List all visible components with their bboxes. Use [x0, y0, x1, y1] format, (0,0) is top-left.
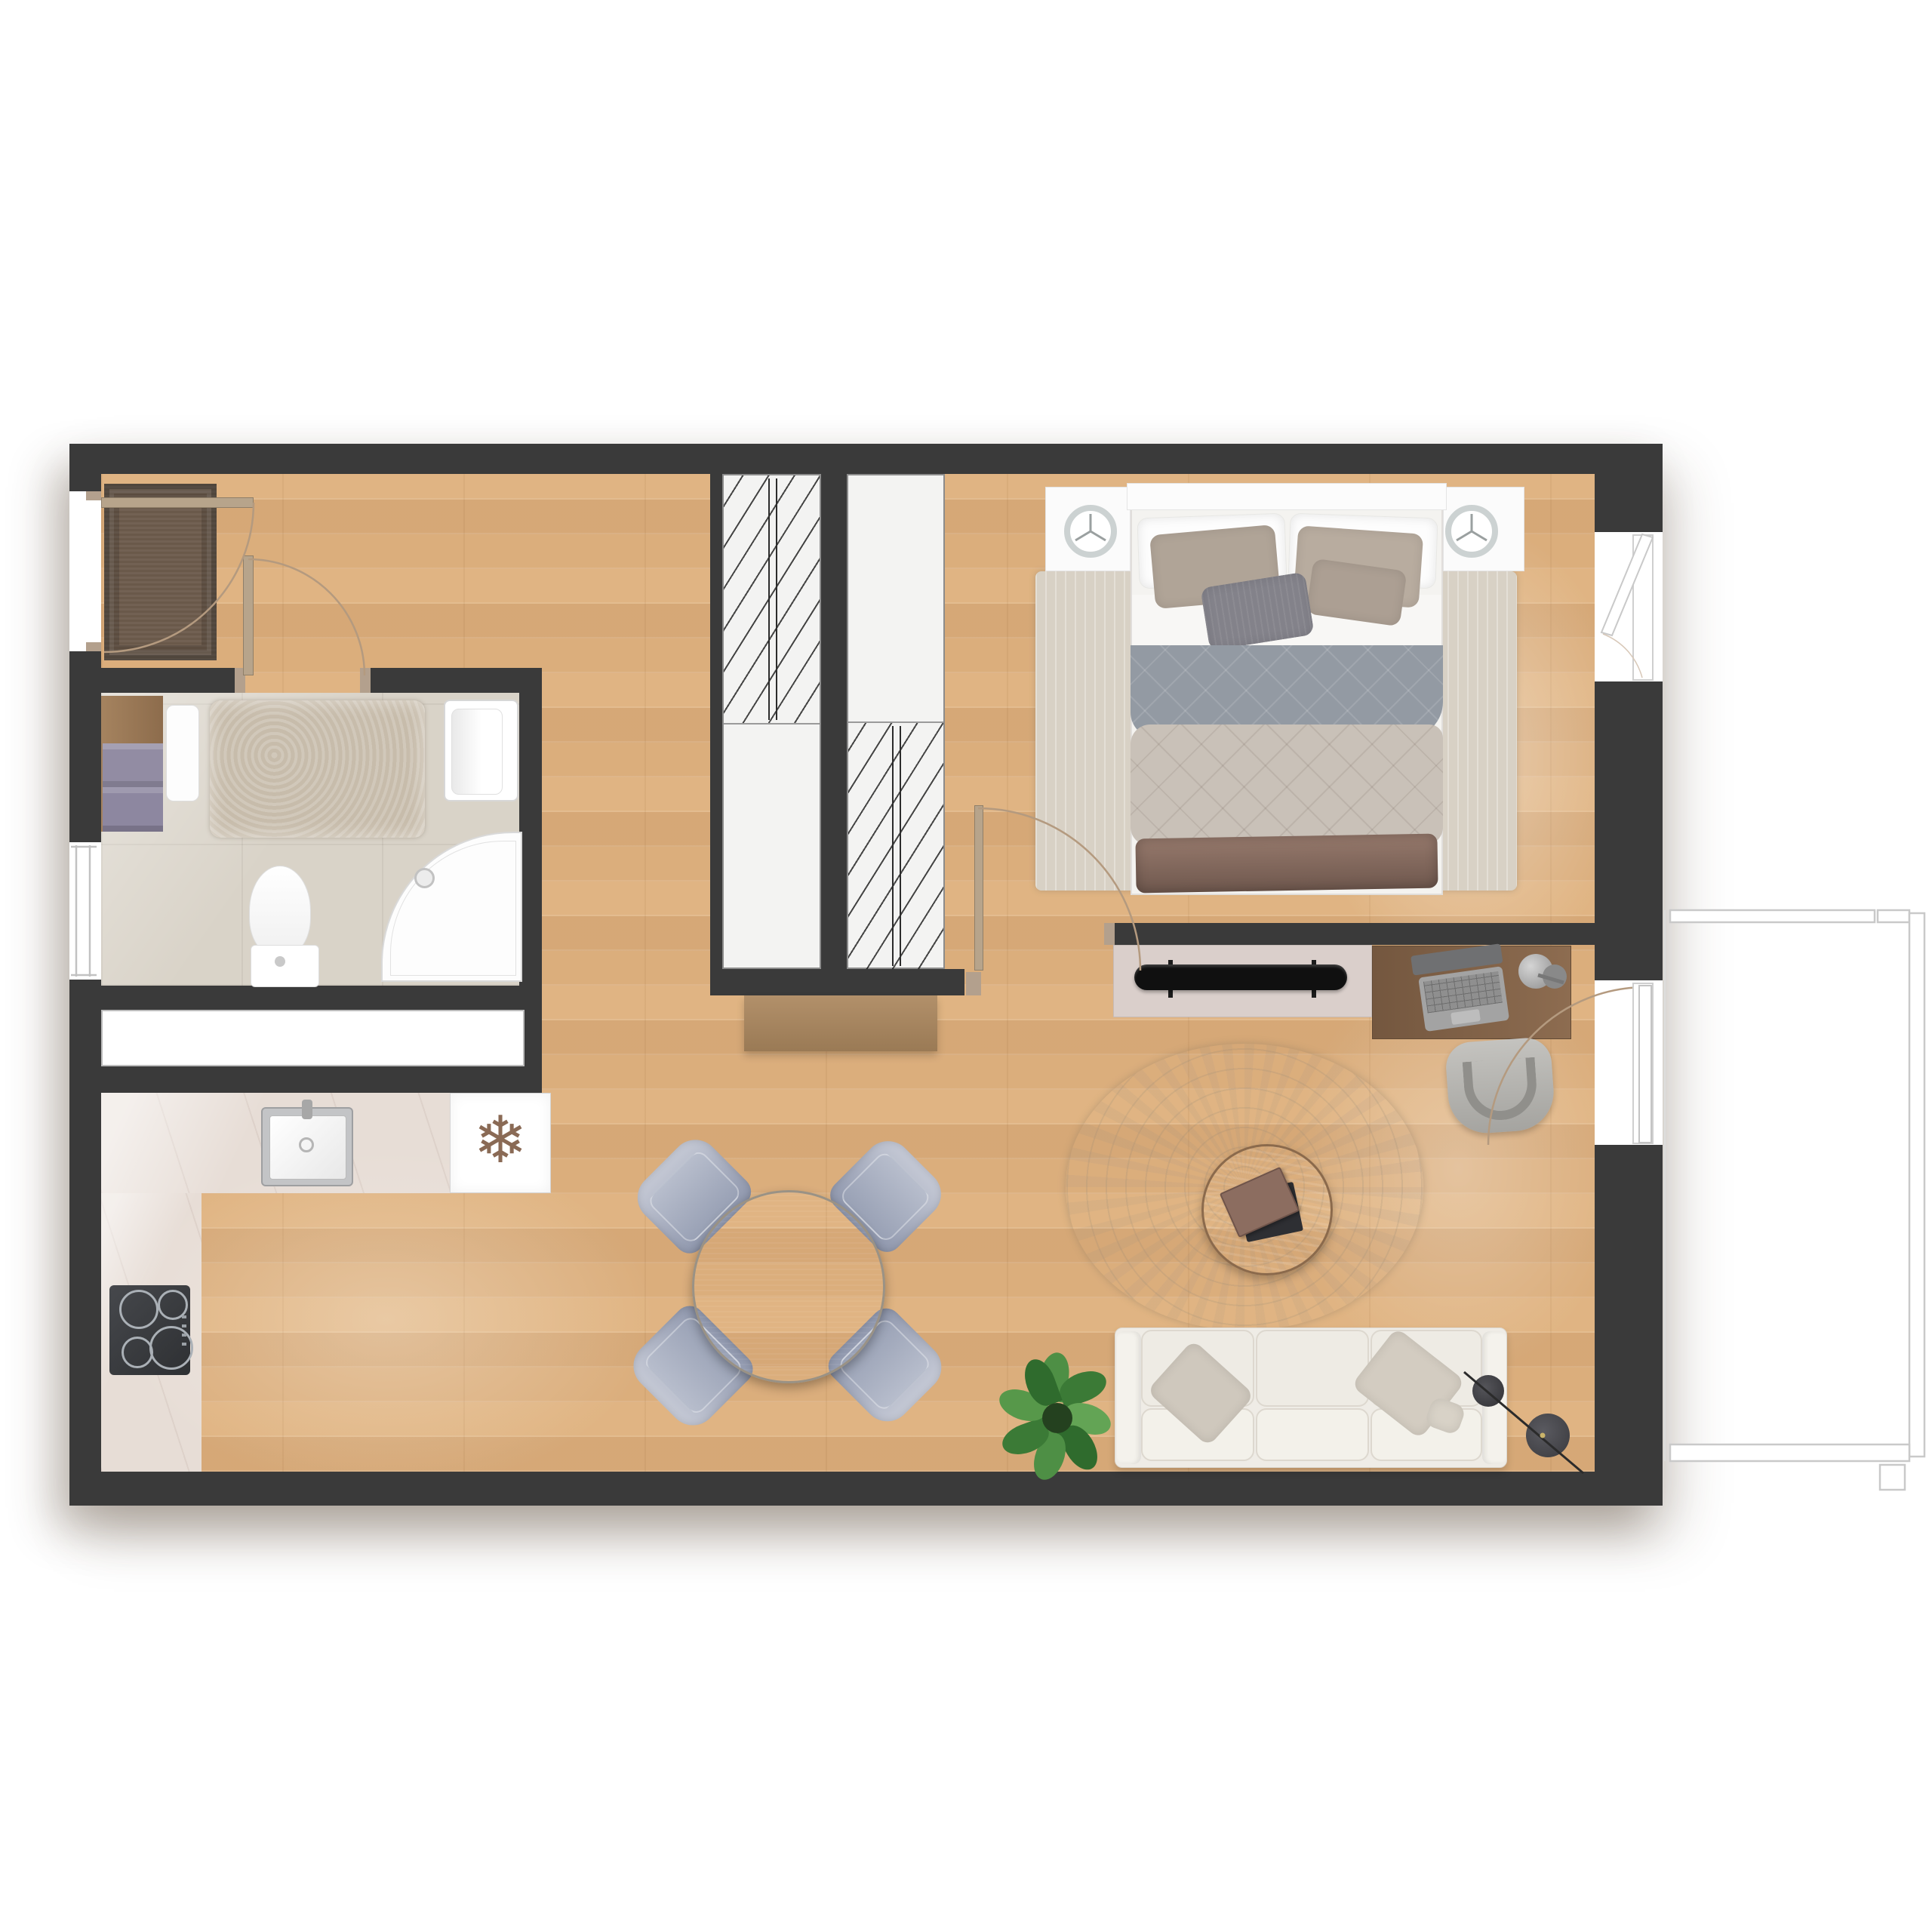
sink-basin	[451, 709, 503, 795]
bathroom-sink	[444, 700, 518, 801]
bathroom-door-leaf	[243, 555, 254, 675]
shower-drain	[414, 868, 435, 888]
bathroom-wall-top-right	[360, 668, 522, 693]
plant-center	[1042, 1403, 1072, 1433]
desk-lamp-base	[1543, 964, 1567, 989]
floor-lamp-head	[1472, 1375, 1504, 1407]
wardrobe-divider-wall	[821, 474, 847, 969]
closet-rail	[892, 726, 901, 966]
entry-door-leaf	[101, 497, 254, 508]
kitchen-faucet	[302, 1100, 312, 1119]
bathroom-wall-bottom	[101, 986, 526, 1010]
doormat	[104, 484, 217, 660]
sofa-seat-cushion	[1256, 1408, 1369, 1461]
front-door-opening	[69, 491, 101, 651]
sofa-arm-left	[1117, 1331, 1141, 1464]
closet-rail	[768, 478, 777, 720]
nightstand-left	[1045, 487, 1131, 571]
snowflake-icon: ❄	[473, 1103, 528, 1178]
balcony-door-opening	[1595, 980, 1663, 1145]
nightstand-right	[1443, 487, 1524, 571]
wall-left-mid	[69, 651, 101, 842]
wall-left-lower	[69, 980, 101, 1506]
wall-right-mid	[1595, 681, 1663, 980]
wardrobe-bottom-band	[710, 969, 964, 995]
bedroom-window-opening	[1595, 532, 1663, 681]
wall-right-lower	[1595, 1145, 1663, 1506]
toilet-bowl	[249, 866, 311, 956]
bathroom-cabinet	[166, 705, 199, 801]
bedroom-wall-bottom	[1115, 923, 1595, 945]
laptop	[1406, 941, 1516, 1038]
kitchen-window-opening	[69, 842, 101, 980]
burner	[119, 1290, 158, 1329]
cooktop-controls	[182, 1315, 186, 1346]
installation-shaft	[101, 1010, 525, 1066]
hall-bench	[744, 995, 937, 1051]
bathroom-door-jamb-right	[360, 668, 371, 693]
dining-table	[692, 1190, 885, 1383]
desk-chair	[1444, 1036, 1556, 1135]
wall-right-upper	[1595, 444, 1663, 532]
burner	[149, 1326, 193, 1370]
sofa	[1115, 1327, 1507, 1468]
floor-lamp-base	[1526, 1414, 1570, 1457]
bedroom-wall-cap	[1104, 923, 1115, 945]
towel-stack-2	[103, 787, 163, 832]
toilet-tank	[251, 945, 319, 987]
balcony-railing	[1665, 910, 1924, 1490]
bed-headboard	[1127, 483, 1447, 510]
cooktop	[109, 1285, 190, 1375]
wardrobe-right-rail-section	[848, 721, 943, 969]
wall-top	[69, 444, 1663, 474]
plant	[1000, 1361, 1113, 1474]
wardrobe-left-rail-section	[724, 475, 820, 724]
tv	[1134, 964, 1347, 990]
wardrobe-right	[847, 474, 945, 969]
front-door-jamb-top	[86, 491, 101, 500]
bed-throw	[1135, 834, 1438, 894]
bedroom-door-leaf	[974, 805, 983, 971]
towel-stack-1	[103, 743, 163, 787]
bath-rug	[210, 700, 425, 838]
fridge: ❄	[450, 1093, 551, 1193]
front-door-jamb-bottom	[86, 642, 101, 651]
wardrobe-side-panel	[710, 474, 722, 995]
bed-duvet	[1131, 724, 1443, 845]
wardrobe-left	[722, 474, 821, 969]
wall-left-upper	[69, 444, 101, 491]
toilet-flush-button	[275, 956, 285, 967]
kitchen-wall-band	[101, 1066, 542, 1093]
bathroom-wall-top-left	[101, 668, 239, 693]
bedroom-door-jamb	[966, 972, 981, 995]
floor-plan: ❄	[69, 444, 1663, 1506]
sofa-back-cushion	[1256, 1330, 1369, 1407]
burner	[122, 1337, 153, 1368]
kitchen-sink	[261, 1107, 353, 1186]
wall-bottom	[69, 1472, 1663, 1506]
kitchen-drain	[299, 1137, 314, 1152]
